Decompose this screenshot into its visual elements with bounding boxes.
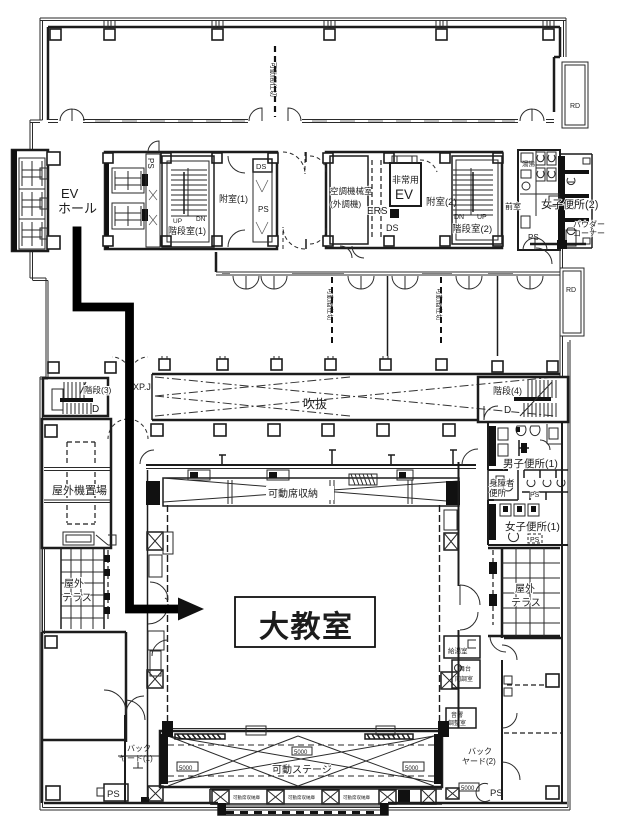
svg-text:屋外: 屋外 bbox=[515, 583, 535, 595]
svg-text:テラス: テラス bbox=[62, 592, 92, 604]
svg-text:大教室: 大教室 bbox=[259, 610, 354, 644]
svg-text:コーナー: コーナー bbox=[573, 229, 605, 238]
svg-text:D: D bbox=[92, 404, 99, 415]
svg-text:女子便所(2): 女子便所(2) bbox=[541, 197, 598, 211]
svg-text:階段(4): 階段(4) bbox=[493, 385, 522, 396]
svg-text:(外調機): (外調機) bbox=[330, 199, 361, 209]
svg-text:PS: PS bbox=[107, 789, 120, 800]
svg-text:可動間仕切: 可動間仕切 bbox=[326, 288, 335, 321]
svg-text:階段室(2): 階段室(2) bbox=[452, 223, 492, 235]
svg-text:ホール: ホール bbox=[58, 201, 97, 216]
svg-text:PS: PS bbox=[530, 492, 540, 499]
svg-text:RD: RD bbox=[566, 287, 576, 294]
svg-text:可動席収納: 可動席収納 bbox=[268, 487, 318, 500]
svg-text:DN: DN bbox=[454, 214, 464, 221]
svg-text:ERS: ERS bbox=[367, 206, 388, 217]
svg-text:PS: PS bbox=[530, 537, 540, 544]
svg-text:便所: 便所 bbox=[489, 488, 507, 498]
svg-text:同調室: 同調室 bbox=[455, 675, 473, 683]
svg-text:テラス: テラス bbox=[511, 597, 541, 609]
svg-text:PS: PS bbox=[258, 205, 269, 214]
svg-text:可動間仕切: 可動間仕切 bbox=[269, 62, 278, 97]
svg-text:附室(1): 附室(1) bbox=[219, 193, 248, 204]
svg-text:PS: PS bbox=[146, 158, 155, 169]
svg-text:屋外機置場: 屋外機置場 bbox=[52, 483, 107, 497]
svg-text:RD: RD bbox=[570, 103, 580, 110]
svg-text:5000: 5000 bbox=[461, 786, 475, 792]
svg-text:EV: EV bbox=[395, 187, 413, 202]
svg-text:調整室: 調整室 bbox=[448, 719, 466, 727]
svg-text:可動間仕切: 可動間仕切 bbox=[435, 288, 444, 321]
svg-text:PS: PS bbox=[528, 233, 539, 242]
svg-text:PS: PS bbox=[490, 788, 503, 799]
svg-text:吹抜: 吹抜 bbox=[303, 397, 327, 411]
svg-text:5000: 5000 bbox=[179, 766, 193, 772]
svg-text:可動席収納庫: 可動席収納庫 bbox=[233, 794, 260, 801]
svg-text:可動席収納庫: 可動席収納庫 bbox=[343, 794, 370, 801]
svg-text:空調機械室: 空調機械室 bbox=[330, 186, 373, 196]
svg-text:舞台: 舞台 bbox=[459, 665, 471, 673]
svg-text:身障者: 身障者 bbox=[489, 478, 515, 488]
svg-text:可動席収納庫: 可動席収納庫 bbox=[288, 794, 315, 801]
svg-text:階段室(1): 階段室(1) bbox=[168, 225, 206, 236]
svg-text:階段(3): 階段(3) bbox=[84, 385, 112, 395]
svg-text:DS: DS bbox=[256, 162, 266, 171]
svg-text:給湯室: 給湯室 bbox=[448, 646, 468, 655]
svg-text:EV: EV bbox=[61, 186, 79, 201]
svg-text:屋外: 屋外 bbox=[64, 578, 84, 590]
svg-text:ヤード(2): ヤード(2) bbox=[462, 757, 496, 766]
svg-text:DS: DS bbox=[386, 223, 399, 233]
svg-text:非常用: 非常用 bbox=[392, 174, 419, 185]
svg-text:DN: DN bbox=[196, 216, 206, 223]
svg-text:前室: 前室 bbox=[505, 201, 521, 211]
svg-text:パウダー: パウダー bbox=[573, 219, 605, 229]
svg-text:5000: 5000 bbox=[405, 766, 419, 772]
svg-text:5000: 5000 bbox=[294, 750, 308, 756]
svg-text:男子便所(1): 男子便所(1) bbox=[503, 457, 558, 470]
svg-text:D: D bbox=[504, 405, 511, 416]
svg-text:UP: UP bbox=[477, 214, 487, 221]
svg-text:バック: バック bbox=[468, 747, 492, 756]
svg-text:音響: 音響 bbox=[451, 711, 463, 719]
svg-text:可動ステージ: 可動ステージ bbox=[272, 763, 332, 776]
svg-text:女子便所(1): 女子便所(1) bbox=[505, 520, 560, 533]
svg-text:UP: UP bbox=[173, 218, 182, 225]
